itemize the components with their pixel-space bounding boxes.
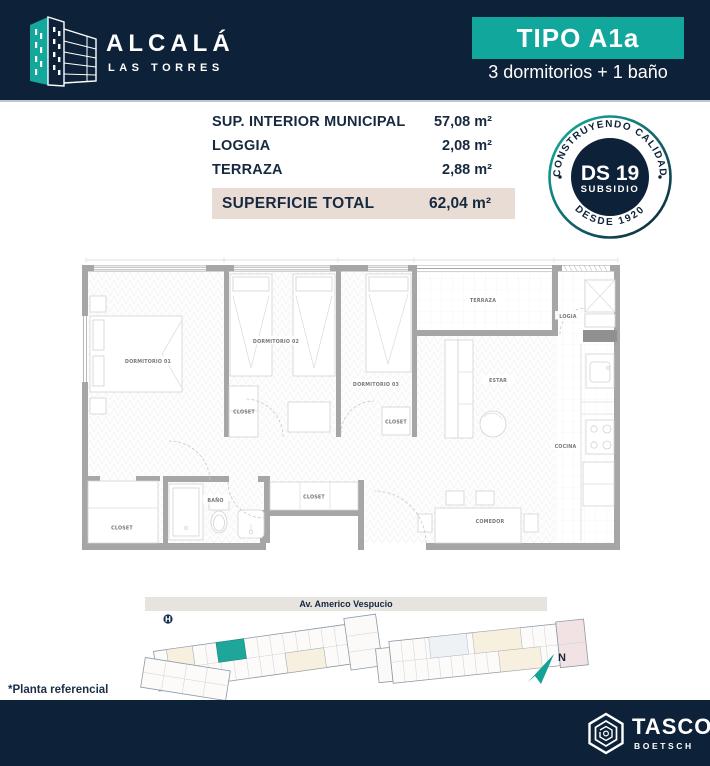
highlighted-unit: [216, 639, 247, 663]
footer-bar: TASCO BOETSCH: [0, 700, 710, 766]
footer-brand: TASCO: [632, 714, 710, 740]
north-label: N: [558, 652, 566, 664]
siteplan-building-right: [375, 619, 589, 687]
room-label-closet-3: CLOSET: [303, 495, 325, 501]
footer-brand-sub: BOETSCH: [634, 741, 694, 751]
surface-label: TERRAZA: [212, 162, 283, 178]
surface-total-value: 62,04 m²: [429, 195, 491, 213]
seal-ds19: DS 19: [581, 162, 639, 185]
brand-subname: LAS TORRES: [108, 62, 224, 74]
room-label-bano: BAÑO: [207, 497, 223, 504]
metro-icon: [163, 614, 172, 623]
exterior-notch: [266, 516, 358, 558]
surface-table: SUP. INTERIOR MUNICIPAL 57,08 m² LOGGIA …: [212, 110, 492, 182]
room-label-closet-4: CLOSET: [111, 526, 133, 532]
room-label-logia: LOGIA: [559, 314, 576, 320]
surface-total-label: SUPERFICIE TOTAL: [222, 195, 374, 213]
seal-dot-right: [658, 175, 661, 178]
surface-value: 2,08 m²: [442, 138, 492, 154]
ds19-subsidio-seal: CONSTRUYENDO CALIDAD DESDE 1920 DS 19 SU…: [546, 113, 674, 241]
street-label: Av. Americo Vespucio: [299, 599, 393, 609]
surface-label: LOGGIA: [212, 138, 270, 154]
surface-row: TERRAZA 2,88 m²: [212, 158, 492, 182]
siteplan: Av. Americo Vespucio: [130, 590, 590, 700]
unit-type-badge: TIPO A1a: [472, 17, 684, 59]
room-label-closet-2: CLOSET: [385, 420, 407, 426]
seal-subsidio: SUBSIDIO: [581, 184, 640, 195]
room-label-terraza: TERRAZA: [470, 298, 496, 304]
tasco-hexagon-icon: [584, 711, 628, 757]
room-label-dorm2: DORMITORIO 02: [253, 339, 299, 345]
building-logo-icon: [24, 11, 104, 91]
room-label-estar: ESTAR: [489, 378, 507, 384]
floorplan-drawing: DORMITORIO 01 DORMITORIO 02 DORMITORIO 0…: [78, 256, 644, 558]
header-bar: ALCALÁ LAS TORRES TIPO A1a 3 dormitorios…: [0, 0, 710, 102]
surface-label: SUP. INTERIOR MUNICIPAL: [212, 114, 405, 130]
unit-type-subtitle: 3 dormitorios + 1 baño: [462, 62, 694, 83]
footnote: *Planta referencial: [8, 684, 108, 696]
dimension-line: [86, 258, 618, 263]
room-label-dorm1: DORMITORIO 01: [125, 359, 171, 365]
siteplan-building-left: [141, 614, 383, 700]
surface-value: 57,08 m²: [434, 114, 492, 130]
brand-name: ALCALÁ: [106, 30, 235, 58]
room-label-cocina: COCINA: [555, 444, 577, 450]
surface-row: SUP. INTERIOR MUNICIPAL 57,08 m²: [212, 110, 492, 134]
surface-value: 2,88 m²: [442, 162, 492, 178]
room-label-comedor: COMEDOR: [476, 519, 505, 525]
surface-total-row: SUPERFICIE TOTAL 62,04 m²: [212, 188, 515, 219]
surface-row: LOGGIA 2,08 m²: [212, 134, 492, 158]
room-label-dorm3: DORMITORIO 03: [353, 382, 399, 388]
entry-closet: [88, 481, 158, 543]
seal-dot-left: [558, 175, 561, 178]
room-label-closet-1: CLOSET: [233, 410, 255, 416]
